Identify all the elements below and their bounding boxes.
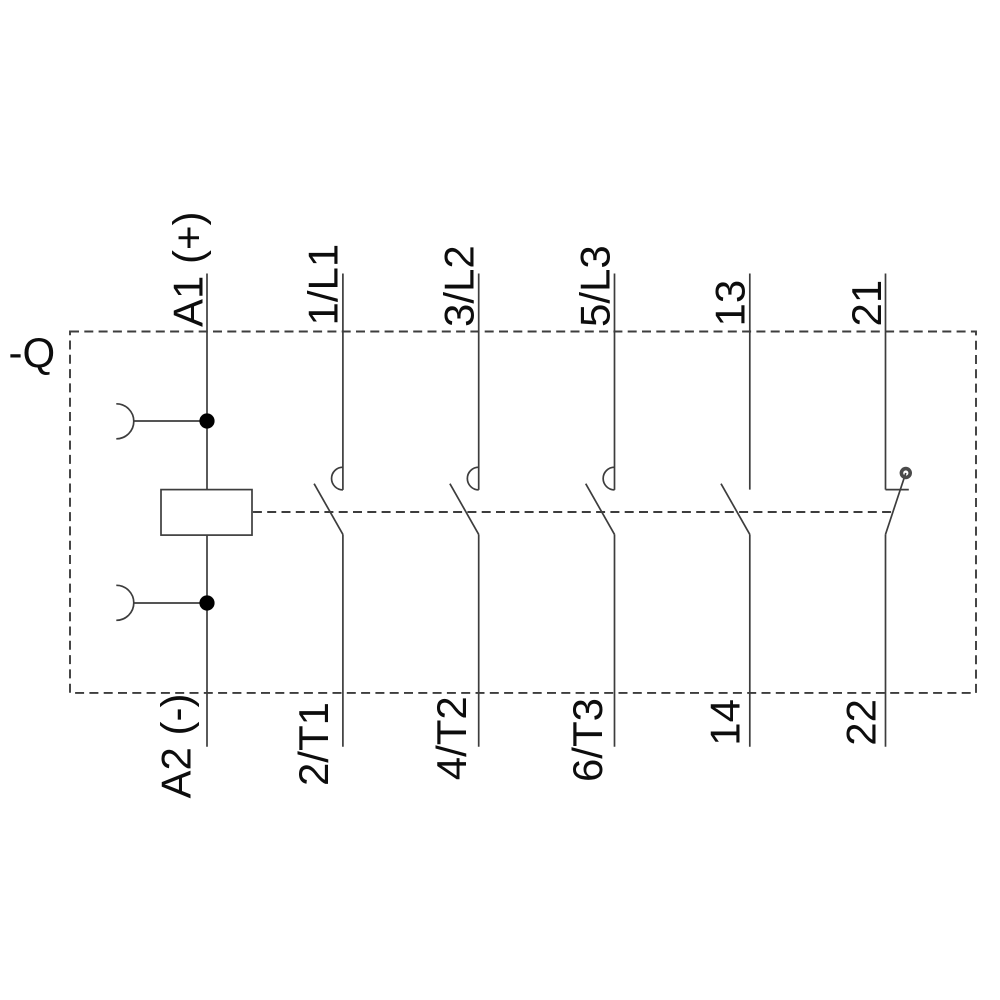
svg-text:A2 (-): A2 (-) [153, 694, 200, 799]
svg-text:22: 22 [838, 699, 885, 746]
svg-text:2/T1: 2/T1 [290, 702, 337, 786]
svg-text:3/L2: 3/L2 [436, 245, 483, 327]
svg-text:13: 13 [707, 280, 754, 327]
svg-text:-Q: -Q [9, 329, 56, 376]
svg-text:1/L1: 1/L1 [299, 244, 346, 326]
svg-text:21: 21 [843, 280, 890, 327]
svg-text:14: 14 [701, 699, 748, 746]
svg-text:5/L3: 5/L3 [571, 245, 618, 327]
svg-text:6/T3: 6/T3 [564, 698, 611, 782]
svg-text:A1 (+): A1 (+) [165, 211, 212, 327]
svg-text:4/T2: 4/T2 [428, 696, 475, 780]
